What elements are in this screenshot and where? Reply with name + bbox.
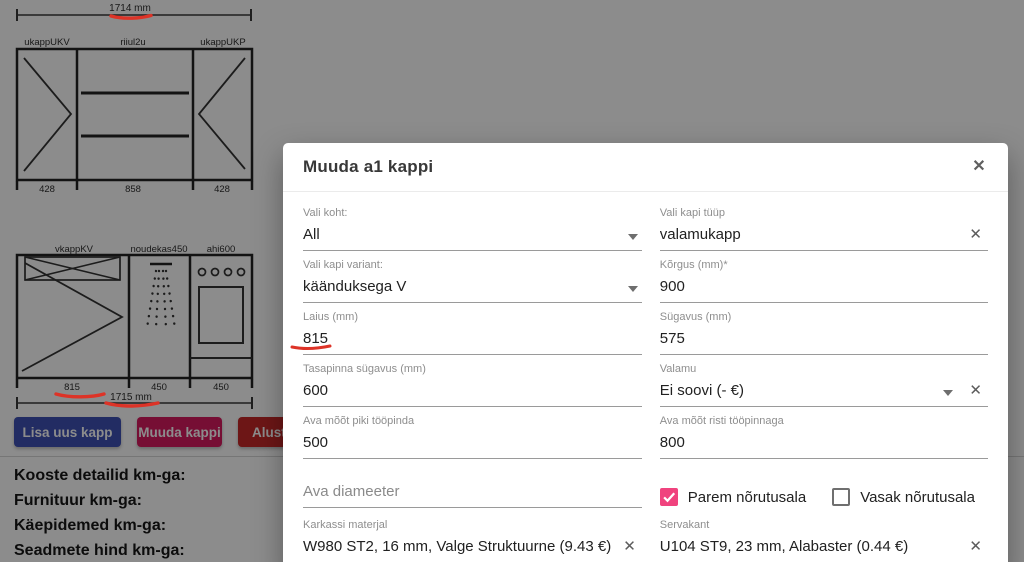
checkbox-left-drainer[interactable] <box>832 488 850 506</box>
clear-icon[interactable]: ✕ <box>623 539 636 555</box>
field-value: 500 <box>303 433 642 452</box>
field-ava-diameeter: Ava diameeter <box>303 464 642 516</box>
cabinet-form: Vali koht: All Vali kapi tüüp valamukapp… <box>283 192 1008 562</box>
app-screen: 1714 mm ukappUKV riiul2u ukappUKP 428 85… <box>0 0 1024 562</box>
field-value: valamukapp <box>660 225 958 244</box>
field-tasapinna: Tasapinna sügavus (mm) 600 <box>303 360 642 412</box>
depth-input[interactable]: 575 <box>660 329 988 355</box>
height-input[interactable]: 900 <box>660 277 988 303</box>
field-kapi-tyyp: Vali kapi tüüp valamukapp ✕ <box>660 204 988 256</box>
carcass-material-select[interactable]: W980 ST2, 16 mm, Valge Struktuurne (9.43… <box>303 537 642 562</box>
field-servakant: Servakant U104 ST9, 23 mm, Alabaster (0.… <box>660 516 988 562</box>
chevron-down-icon[interactable] <box>628 286 638 292</box>
field-value: All <box>303 225 618 244</box>
chevron-down-icon[interactable] <box>943 390 953 396</box>
field-karkass: Karkassi materjal W980 ST2, 16 mm, Valge… <box>303 516 642 562</box>
checkbox-right-drainer[interactable] <box>660 488 678 506</box>
field-value: Ei soovi (- €) <box>660 381 934 400</box>
field-label: Vali kapi variant: <box>303 258 642 273</box>
field-valamu: Valamu Ei soovi (- €) ✕ <box>660 360 988 412</box>
field-label: Karkassi materjal <box>303 518 642 533</box>
chevron-down-icon[interactable] <box>628 234 638 240</box>
field-kapi-variant: Vali kapi variant: käänduksega V <box>303 256 642 308</box>
width-input[interactable]: 815 <box>303 329 642 355</box>
field-vali-koht: Vali koht: All <box>303 204 642 256</box>
cabinet-type-input[interactable]: valamukapp ✕ <box>660 225 988 251</box>
field-label: Servakant <box>660 518 988 533</box>
hole-diameter-input[interactable]: Ava diameeter <box>303 482 642 508</box>
edit-cabinet-dialog: Muuda a1 kappi ✕ Vali koht: All Vali kap… <box>283 143 1008 562</box>
field-label: Valamu <box>660 362 988 377</box>
field-value: W980 ST2, 16 mm, Valge Struktuurne (9.43… <box>303 537 611 556</box>
clear-icon[interactable]: ✕ <box>969 227 982 243</box>
field-laius: Laius (mm) 815 <box>303 308 642 360</box>
field-ava-risti: Ava mõõt risti tööpinnaga 800 <box>660 412 988 464</box>
close-icon[interactable]: ✕ <box>968 156 990 178</box>
field-label: Tasapinna sügavus (mm) <box>303 362 642 377</box>
field-label: Vali koht: <box>303 206 642 221</box>
field-korgus: Kõrgus (mm)* 900 <box>660 256 988 308</box>
field-sygavus: Sügavus (mm) 575 <box>660 308 988 360</box>
drainer-options: Parem nõrutusala Vasak nõrutusala <box>660 464 988 516</box>
field-value: 600 <box>303 381 642 400</box>
dialog-header: Muuda a1 kappi ✕ <box>283 143 1008 192</box>
field-value: 815 <box>303 329 642 348</box>
field-value: 900 <box>660 277 988 296</box>
worktop-depth-input[interactable]: 600 <box>303 381 642 407</box>
field-label: Laius (mm) <box>303 310 642 325</box>
clear-icon[interactable]: ✕ <box>969 383 982 399</box>
field-value: U104 ST9, 23 mm, Alabaster (0.44 €) <box>660 537 958 556</box>
select-variant[interactable]: käänduksega V <box>303 277 642 303</box>
checkbox-label: Vasak nõrutusala <box>860 489 975 506</box>
input-placeholder: Ava diameeter <box>303 482 642 501</box>
checkbox-label: Parem nõrutusala <box>688 489 806 506</box>
field-label: Kõrgus (mm)* <box>660 258 988 273</box>
clear-icon[interactable]: ✕ <box>969 539 982 555</box>
cutout-length-input[interactable]: 500 <box>303 433 642 459</box>
sink-select[interactable]: Ei soovi (- €) ✕ <box>660 381 988 407</box>
field-label: Ava mõõt risti tööpinnaga <box>660 414 988 429</box>
field-value: 800 <box>660 433 988 452</box>
edge-band-select[interactable]: U104 ST9, 23 mm, Alabaster (0.44 €) ✕ <box>660 537 988 562</box>
field-label: Ava mõõt piki tööpinda <box>303 414 642 429</box>
field-label: Vali kapi tüüp <box>660 206 988 221</box>
cutout-width-input[interactable]: 800 <box>660 433 988 459</box>
field-value: 575 <box>660 329 988 348</box>
dialog-title: Muuda a1 kappi <box>303 157 433 177</box>
field-label: Sügavus (mm) <box>660 310 988 325</box>
field-value: käänduksega V <box>303 277 618 296</box>
field-ava-piki: Ava mõõt piki tööpinda 500 <box>303 412 642 464</box>
check-icon <box>660 488 678 506</box>
select-location[interactable]: All <box>303 225 642 251</box>
